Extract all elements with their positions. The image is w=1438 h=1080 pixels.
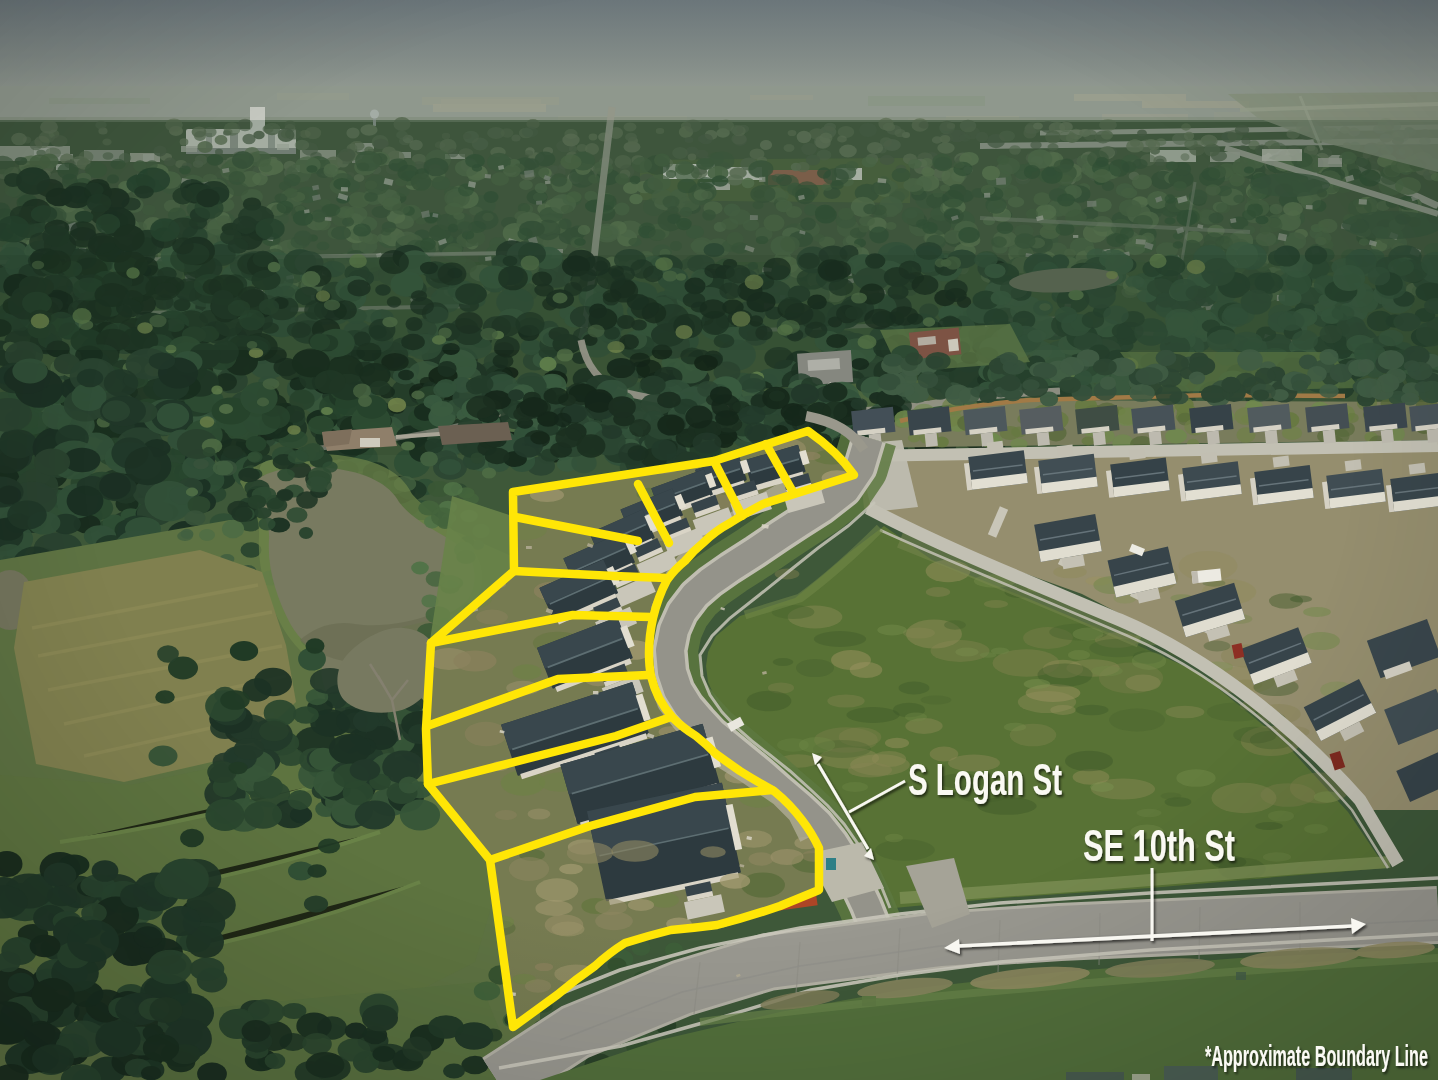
svg-text:*Approximate Boundary Line: *Approximate Boundary Line [1205, 1040, 1428, 1072]
svg-text:S Logan St: S Logan St [908, 755, 1062, 804]
svg-text:SE 10th St: SE 10th St [1083, 821, 1235, 870]
